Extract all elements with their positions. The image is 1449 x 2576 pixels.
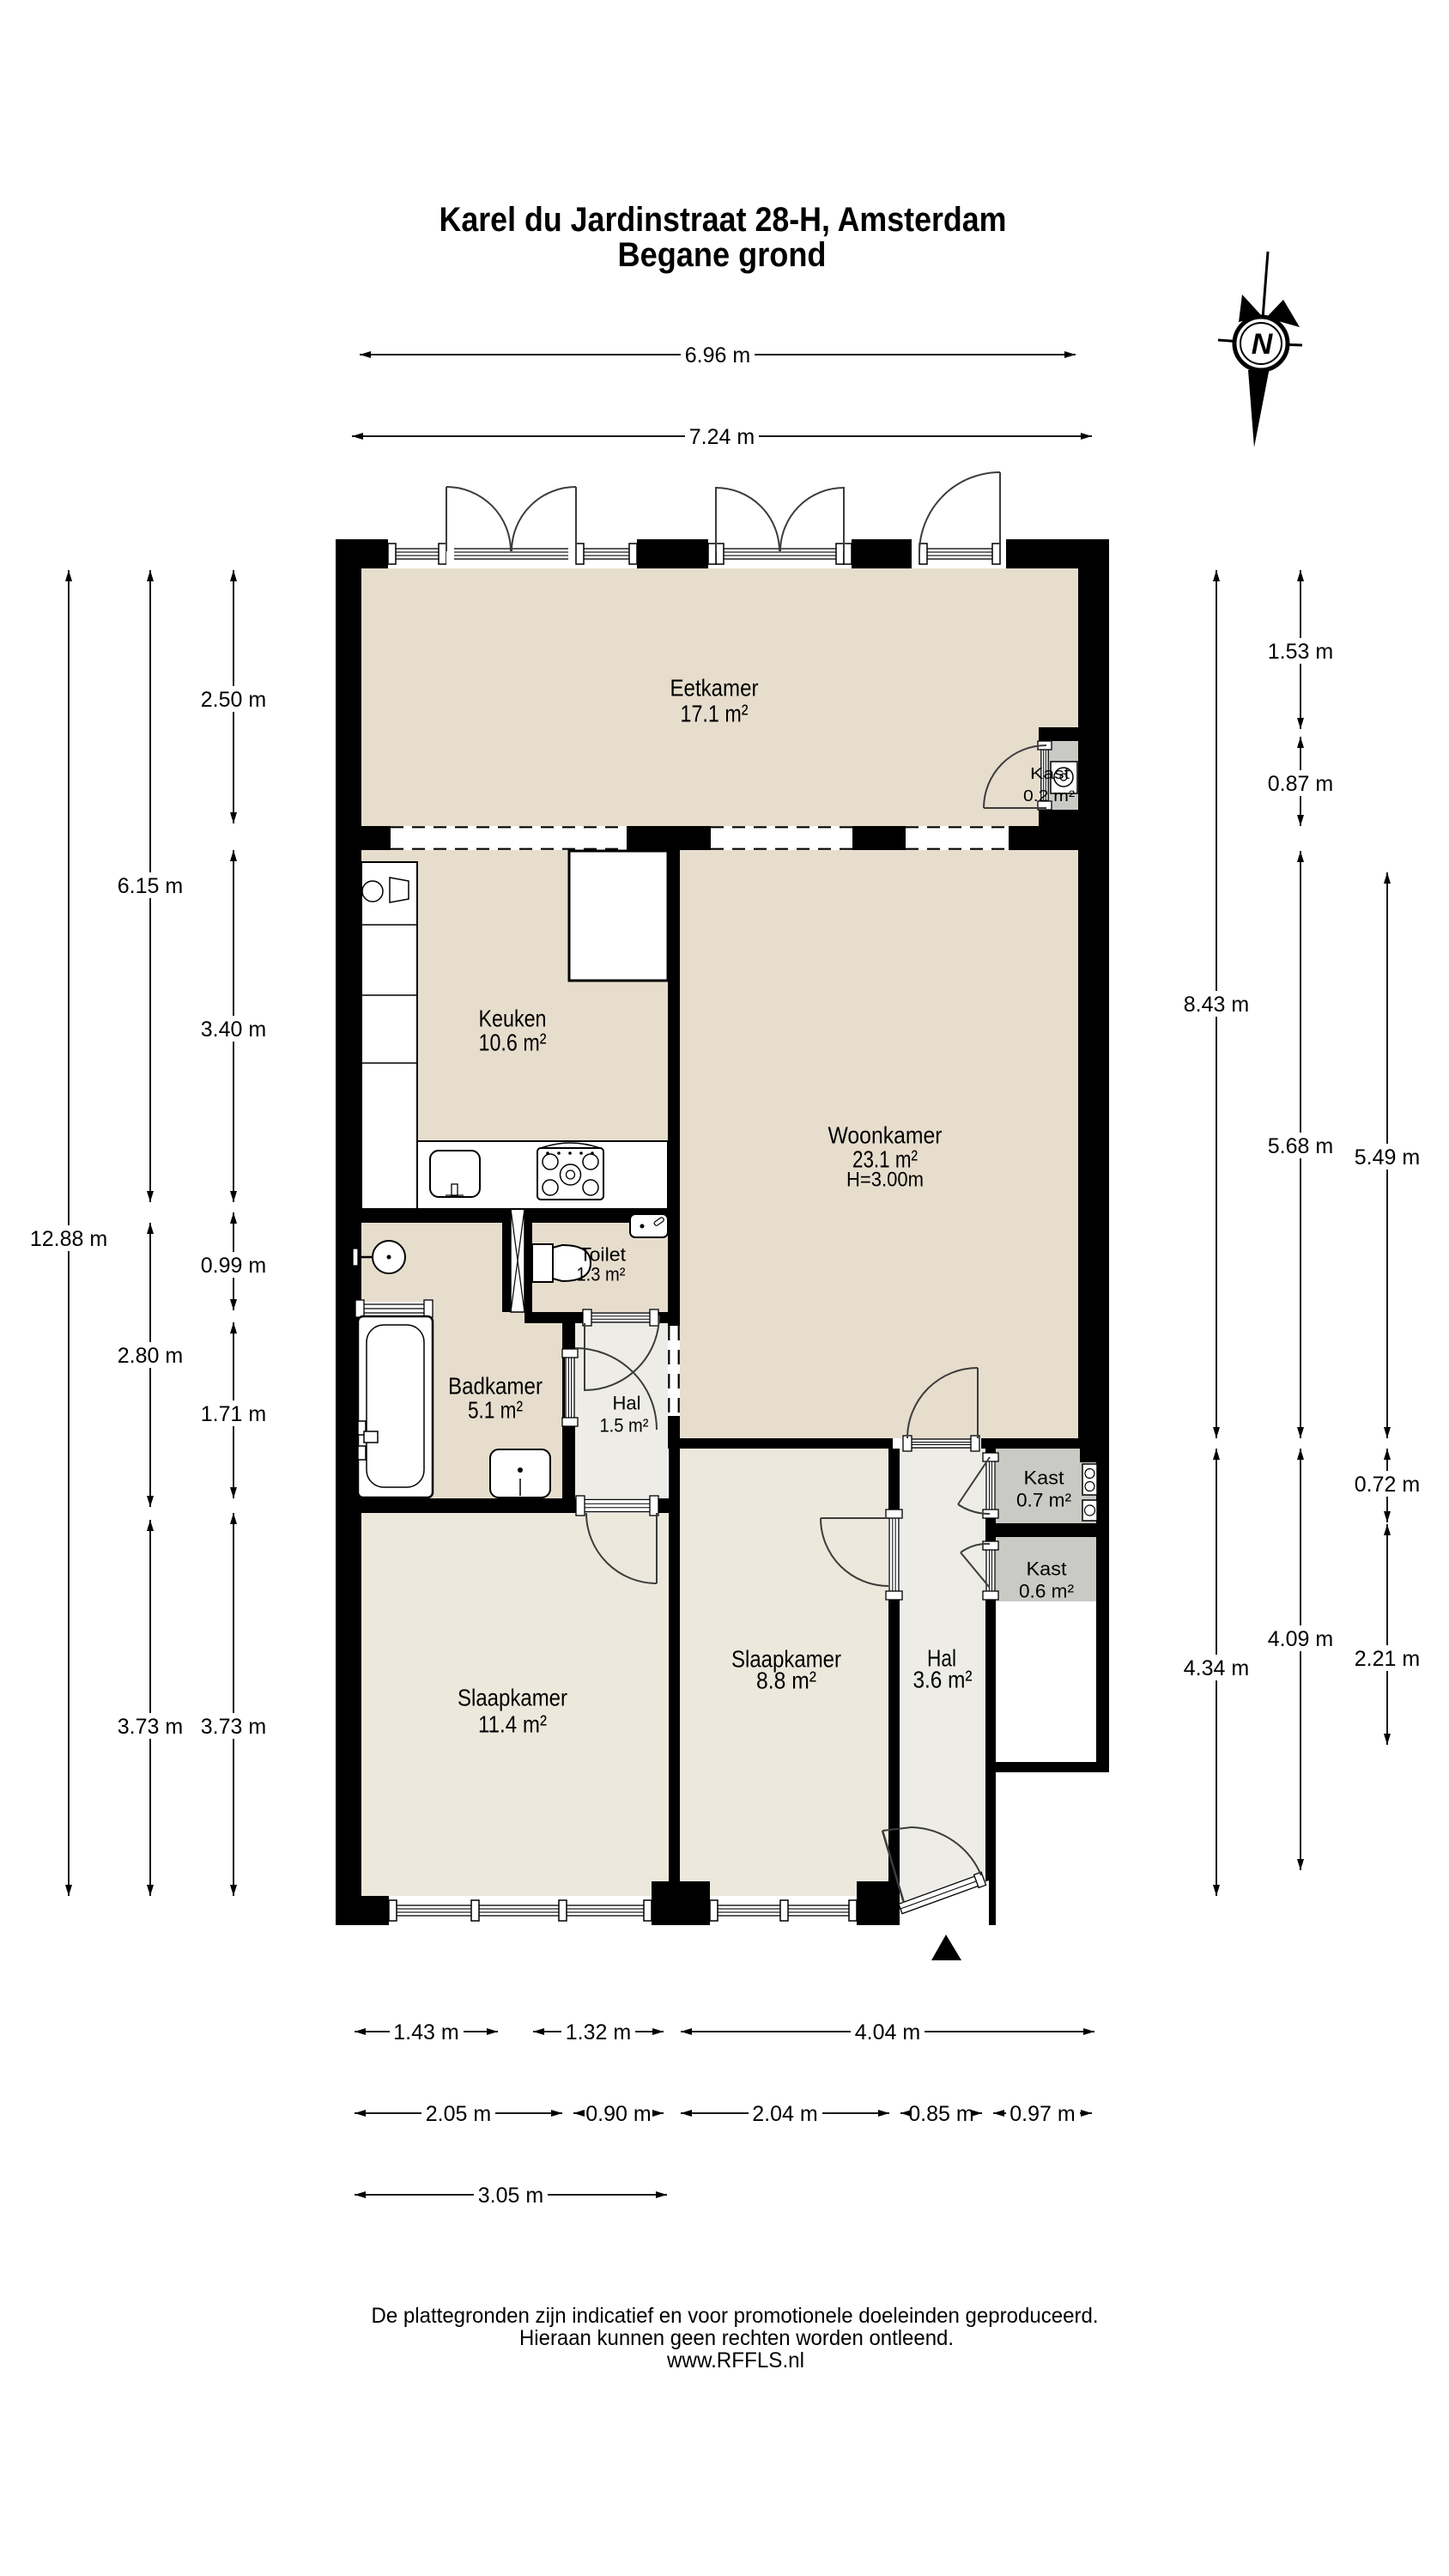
svg-text:De plattegronden zijn indicati: De plattegronden zijn indicatief en voor… [372, 2304, 1099, 2328]
svg-text:8.43 m: 8.43 m [1184, 993, 1249, 1017]
svg-text:1.5 m²: 1.5 m² [600, 1415, 649, 1437]
svg-text:4.34 m: 4.34 m [1184, 1656, 1249, 1680]
svg-text:Woonkamer: Woonkamer [828, 1122, 943, 1149]
svg-text:3.40 m: 3.40 m [201, 1018, 266, 1042]
svg-text:8.8 m²: 8.8 m² [756, 1668, 816, 1694]
svg-text:0.90 m: 0.90 m [585, 2102, 651, 2126]
svg-text:Hieraan kunnen geen rechten wo: Hieraan kunnen geen rechten worden ontle… [519, 2326, 954, 2350]
svg-text:3.73 m: 3.73 m [201, 1715, 266, 1739]
svg-text:0.2 m²: 0.2 m² [1023, 787, 1075, 805]
svg-text:0.87 m: 0.87 m [1268, 772, 1333, 796]
svg-text:4.09 m: 4.09 m [1268, 1627, 1333, 1651]
svg-text:2.80 m: 2.80 m [118, 1344, 183, 1368]
svg-text:Keuken: Keuken [479, 1005, 547, 1032]
svg-text:Toilet: Toilet [579, 1244, 626, 1266]
svg-text:Hal: Hal [613, 1393, 641, 1414]
svg-text:0.99 m: 0.99 m [201, 1254, 266, 1278]
svg-text:1.32 m: 1.32 m [566, 2020, 631, 2044]
svg-text:7.24 m: 7.24 m [689, 425, 755, 449]
svg-text:2.21 m: 2.21 m [1355, 1647, 1420, 1671]
svg-text:0.6 m²: 0.6 m² [1019, 1581, 1074, 1602]
svg-text:2.50 m: 2.50 m [201, 688, 266, 712]
svg-text:6.96 m: 6.96 m [685, 343, 750, 368]
svg-text:Kast: Kast [1027, 1558, 1067, 1580]
svg-text:Badkamer: Badkamer [448, 1373, 543, 1400]
svg-text:5.68 m: 5.68 m [1268, 1134, 1333, 1158]
svg-text:17.1 m²: 17.1 m² [681, 701, 749, 727]
svg-text:Kast: Kast [1030, 765, 1070, 782]
svg-text:N: N [1252, 328, 1274, 361]
svg-text:3.05 m: 3.05 m [478, 2184, 543, 2208]
svg-text:3.6 m²: 3.6 m² [913, 1667, 973, 1693]
svg-text:3.73 m: 3.73 m [118, 1715, 183, 1739]
svg-text:1.43 m: 1.43 m [393, 2020, 458, 2044]
svg-text:11.4 m²: 11.4 m² [478, 1711, 547, 1738]
svg-text:Slaapkamer: Slaapkamer [458, 1685, 567, 1711]
svg-text:2.05 m: 2.05 m [426, 2102, 491, 2126]
svg-text:Eetkamer: Eetkamer [670, 675, 759, 702]
svg-text:4.04 m: 4.04 m [855, 2020, 920, 2044]
svg-text:5.1 m²: 5.1 m² [468, 1397, 523, 1424]
svg-text:Begane grond: Begane grond [618, 236, 827, 274]
svg-text:0.72 m: 0.72 m [1355, 1473, 1420, 1497]
svg-text:0.85 m: 0.85 m [908, 2102, 973, 2126]
svg-text:1.71 m: 1.71 m [201, 1402, 266, 1426]
svg-text:www.RFFLS.nl: www.RFFLS.nl [666, 2348, 804, 2372]
svg-text:0.7 m²: 0.7 m² [1016, 1490, 1071, 1511]
svg-text:5.49 m: 5.49 m [1355, 1145, 1420, 1170]
svg-text:0.97 m: 0.97 m [1009, 2102, 1075, 2126]
svg-text:1.53 m: 1.53 m [1268, 640, 1333, 664]
svg-text:1.3 m²: 1.3 m² [577, 1264, 626, 1285]
svg-text:10.6 m²: 10.6 m² [479, 1030, 547, 1056]
svg-text:6.15 m: 6.15 m [118, 874, 183, 898]
svg-text:H=3.00m: H=3.00m [846, 1169, 924, 1192]
svg-text:12.88 m: 12.88 m [30, 1227, 107, 1251]
svg-text:Kast: Kast [1024, 1467, 1064, 1489]
svg-text:Karel du Jardinstraat 28-H, Am: Karel du Jardinstraat 28-H, Amsterdam [440, 201, 1007, 239]
svg-text:2.04 m: 2.04 m [752, 2102, 817, 2126]
